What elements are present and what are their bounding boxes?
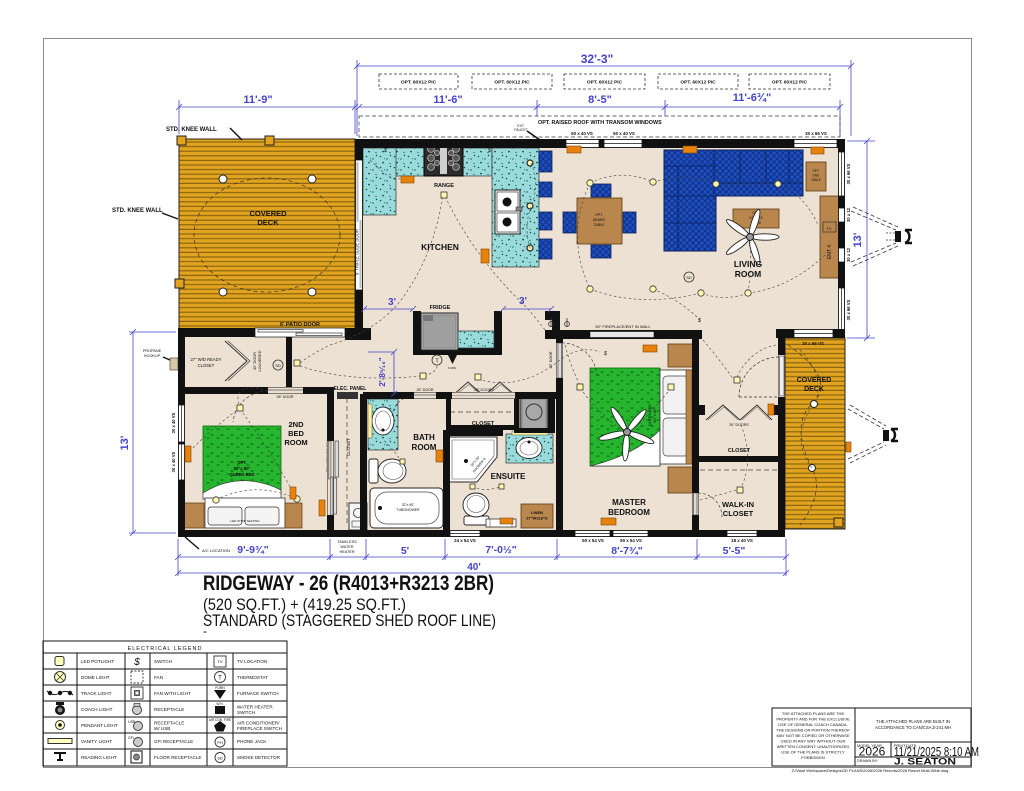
svg-text:11'-6": 11'-6" xyxy=(433,94,462,106)
svg-text:2'-8⁵⁄₁₆": 2'-8⁵⁄₁₆" xyxy=(378,357,387,387)
svg-text:STD. KNEE WALL: STD. KNEE WALL xyxy=(166,127,217,133)
svg-text:OPT. 60X12 PIC: OPT. 60X12 PIC xyxy=(587,80,623,86)
svg-text:OPT. RAISED ROOF WITH TRANSOM: OPT. RAISED ROOF WITH TRANSOM WINDOWS xyxy=(538,120,662,126)
svg-text:CLOSET: CLOSET xyxy=(346,438,351,456)
svg-text:A/C LOCATION: A/C LOCATION xyxy=(202,548,230,553)
svg-text:OPT.: OPT. xyxy=(595,213,603,217)
svg-text:TRACK LIGHT: TRACK LIGHT xyxy=(81,691,112,696)
svg-text:TV: TV xyxy=(826,226,831,231)
svg-text:BED: BED xyxy=(288,429,304,438)
svg-text:RECEPTACLE: RECEPTACLE xyxy=(154,707,184,712)
svg-text:8'-5": 8'-5" xyxy=(588,94,612,106)
svg-text:30 x 12: 30 x 12 xyxy=(846,247,851,262)
svg-text:ENT 4: ENT 4 xyxy=(827,245,833,259)
svg-text:30 x 12: 30 x 12 xyxy=(846,207,851,222)
svg-text:3': 3' xyxy=(388,297,396,308)
svg-text:USE OF THE PLANS IS STRICTLY: USE OF THE PLANS IS STRICTLY xyxy=(781,750,845,755)
svg-text:13': 13' xyxy=(119,435,131,450)
svg-text:FURNACE SWITCH: FURNACE SWITCH xyxy=(237,691,279,696)
svg-text:27"Wx18"D: 27"Wx18"D xyxy=(526,516,548,521)
svg-text:DRAWN BY:: DRAWN BY: xyxy=(857,759,878,763)
svg-text:PH: PH xyxy=(217,740,223,745)
svg-text:ROOM: ROOM xyxy=(735,269,761,279)
svg-text:FIREPLACE SWITCH: FIREPLACE SWITCH xyxy=(237,726,282,731)
svg-text:ROOM: ROOM xyxy=(284,438,307,447)
svg-text:50 x 40 VS: 50 x 40 VS xyxy=(571,131,593,136)
svg-text:TANKLESS: TANKLESS xyxy=(337,540,357,544)
svg-text:THERMOSTAT: THERMOSTAT xyxy=(237,675,268,680)
svg-text:TABLE: TABLE xyxy=(811,178,821,182)
svg-text:3': 3' xyxy=(519,296,527,307)
svg-text:SMOKE DETECTOR: SMOKE DETECTOR xyxy=(237,755,281,760)
svg-text:OPT. 60X12 PIC: OPT. 60X12 PIC xyxy=(494,80,530,86)
svg-text:TABLE: TABLE xyxy=(593,223,605,227)
svg-text:2ND: 2ND xyxy=(288,420,304,429)
svg-text:QUEEN BED: QUEEN BED xyxy=(648,404,652,427)
svg-text:RECEPTACLE: RECEPTACLE xyxy=(154,721,184,726)
svg-text:28" DOOR: 28" DOOR xyxy=(276,395,293,399)
svg-text:ELECTRICAL LEGEND: ELECTRICAL LEGEND xyxy=(128,646,203,652)
svg-text:9'-9¾": 9'-9¾" xyxy=(237,544,268,556)
svg-text:$: $ xyxy=(133,657,140,668)
svg-text:USED IN ANY WAY WITHOUT OUR: USED IN ANY WAY WITHOUT OUR xyxy=(781,739,846,744)
svg-text:QUEEN BED: QUEEN BED xyxy=(230,472,255,477)
svg-text:USB: USB xyxy=(128,720,136,724)
svg-text:$: $ xyxy=(383,148,387,154)
svg-text:SD: SD xyxy=(275,363,281,368)
svg-text:Z:\Vault Workspace\Designs\2D: Z:\Vault Workspace\Designs\2D PLANS\2026… xyxy=(792,768,949,773)
svg-text:FURN: FURN xyxy=(448,366,456,370)
svg-text:BATH: BATH xyxy=(413,433,435,442)
svg-text:26" DOORS: 26" DOORS xyxy=(729,423,749,427)
svg-text:32'-3": 32'-3" xyxy=(581,52,614,66)
svg-text:OPT. 60X12 PIC: OPT. 60X12 PIC xyxy=(401,80,437,86)
svg-text:FRIDGE: FRIDGE xyxy=(430,305,451,311)
svg-text:8'-7¾": 8'-7¾" xyxy=(611,545,642,557)
svg-text:SD: SD xyxy=(217,756,223,761)
svg-text:$$: $$ xyxy=(545,332,552,338)
svg-text:FAN WITH LIGHT: FAN WITH LIGHT xyxy=(154,691,191,696)
svg-text:LED POTLIGHT: LED POTLIGHT xyxy=(81,659,114,664)
svg-text:SWITCH: SWITCH xyxy=(237,710,255,715)
svg-text:BEDROOM: BEDROOM xyxy=(608,508,650,517)
svg-text:ENSUITE: ENSUITE xyxy=(491,472,526,481)
svg-text:FORBIDDEN: FORBIDDEN xyxy=(801,755,825,760)
svg-text:-: - xyxy=(203,624,207,638)
svg-text:FAN: FAN xyxy=(154,675,163,680)
svg-text:USE OF GENERAL COACH CANADA.: USE OF GENERAL COACH CANADA. xyxy=(778,722,847,727)
svg-text:TUB/SHOWER: TUB/SHOWER xyxy=(397,508,421,512)
svg-text:DOME LIGHT: DOME LIGHT xyxy=(81,675,110,680)
svg-text:LINEN: LINEN xyxy=(531,510,543,515)
svg-text:FAUCET: FAUCET xyxy=(514,128,527,132)
svg-text:VANITY LIGHT: VANITY LIGHT xyxy=(81,739,112,744)
svg-text:PHONE JACK: PHONE JACK xyxy=(237,739,267,744)
svg-text:7'-0½": 7'-0½" xyxy=(485,544,516,556)
svg-text:WRITTEN CONSENT. UNAUTHORIZED: WRITTEN CONSENT. UNAUTHORIZED xyxy=(777,744,850,749)
svg-text:$: $ xyxy=(697,318,701,324)
svg-text:W/ USB: W/ USB xyxy=(154,726,170,731)
svg-text:MAY NOT BE COPIED OR OTHERWISE: MAY NOT BE COPIED OR OTHERWISE xyxy=(776,733,849,738)
svg-text:$: $ xyxy=(603,351,607,357)
svg-text:32"x 60": 32"x 60" xyxy=(402,503,415,507)
svg-text:HEATER: HEATER xyxy=(339,550,354,554)
svg-text:DECK: DECK xyxy=(804,386,824,393)
svg-text:LED STRIP SEATING: LED STRIP SEATING xyxy=(230,519,260,523)
svg-text:18 x 40 VS: 18 x 40 VS xyxy=(731,538,753,543)
svg-text:THE ATTACHED PLANS ARE BUILT I: THE ATTACHED PLANS ARE BUILT IN xyxy=(876,719,950,724)
svg-text:WATER: WATER xyxy=(340,545,354,549)
svg-text:11'-6¾": 11'-6¾" xyxy=(733,92,771,104)
svg-text:HOOKUP: HOOKUP xyxy=(144,354,161,358)
svg-text:PROPANE: PROPANE xyxy=(143,349,162,353)
svg-text:W.H.: W.H. xyxy=(216,702,223,706)
svg-text:26" DOOR: 26" DOOR xyxy=(416,388,433,392)
svg-text:30" DOOR: 30" DOOR xyxy=(253,352,257,370)
svg-text:PROPERTY AND FOR THE EXCLUSIVE: PROPERTY AND FOR THE EXCLUSIVE xyxy=(776,717,850,722)
svg-text:OPT.: OPT. xyxy=(812,169,819,173)
svg-text:RIDGEWAY - 26 (R4013+R3213 2BR: RIDGEWAY - 26 (R4013+R3213 2BR) xyxy=(203,572,494,595)
svg-text:LIVING: LIVING xyxy=(734,259,763,269)
svg-text:50 x 40 VS: 50 x 40 VS xyxy=(613,131,635,136)
svg-text:SWITCH: SWITCH xyxy=(154,659,172,664)
svg-text:TV LOCATION: TV LOCATION xyxy=(237,659,267,664)
svg-text:TV: TV xyxy=(217,659,222,664)
svg-text:RANGE: RANGE xyxy=(434,183,454,189)
svg-text:GFI: GFI xyxy=(128,736,134,740)
svg-text:OPT.: OPT. xyxy=(237,460,246,465)
svg-text:5': 5' xyxy=(401,545,409,557)
svg-text:13': 13' xyxy=(852,232,864,247)
svg-text:50" FIREPLACE/ENT IN WALL: 50" FIREPLACE/ENT IN WALL xyxy=(595,324,651,329)
svg-text:50 x 54 VS: 50 x 54 VS xyxy=(620,538,642,543)
svg-text:GFI RECEPTACLE: GFI RECEPTACLE xyxy=(154,739,193,744)
svg-text:2026: 2026 xyxy=(859,745,886,759)
svg-text:J. SEATON: J. SEATON xyxy=(894,757,956,768)
svg-text:CLOSET: CLOSET xyxy=(198,363,215,368)
svg-text:FURN: FURN xyxy=(215,686,225,690)
svg-text:11'-9": 11'-9" xyxy=(243,94,272,106)
svg-text:FLOOR RECEPTACLE: FLOOR RECEPTACLE xyxy=(154,755,201,760)
svg-text:ROOM: ROOM xyxy=(412,443,437,452)
svg-text:T: T xyxy=(218,676,222,682)
svg-text:30 x 66 VS: 30 x 66 VS xyxy=(846,299,851,320)
svg-text:6' PATIO DOOR: 6' PATIO DOOR xyxy=(280,322,320,328)
svg-text:30 x 66 VS: 30 x 66 VS xyxy=(805,131,827,136)
svg-text:THE DESIGNS OR PORTION THEREOF: THE DESIGNS OR PORTION THEREOF xyxy=(776,728,850,733)
svg-text:OPT. 60X12 PIC: OPT. 60X12 PIC xyxy=(680,80,716,86)
svg-text:5'-5": 5'-5" xyxy=(723,545,746,557)
svg-text:60"x 80": 60"x 80" xyxy=(234,466,251,471)
svg-text:AIR CONDITIONER/: AIR CONDITIONER/ xyxy=(237,721,280,726)
svg-text:30 x 66 VS: 30 x 66 VS xyxy=(802,341,824,346)
svg-text:30 x 40 VS: 30 x 40 VS xyxy=(171,451,176,472)
svg-text:CLOSET: CLOSET xyxy=(723,509,754,518)
svg-text:LOUVERED: LOUVERED xyxy=(258,350,262,371)
svg-text:ELEC. PANEL: ELEC. PANEL xyxy=(334,386,367,392)
svg-text:END: END xyxy=(813,174,820,178)
svg-text:28" DOOR: 28" DOOR xyxy=(549,351,553,368)
svg-text:27" W/D READY: 27" W/D READY xyxy=(190,357,221,362)
svg-text:COVERED: COVERED xyxy=(797,377,832,384)
svg-text:WALK-IN: WALK-IN xyxy=(722,500,754,509)
svg-text:KITCHEN: KITCHEN xyxy=(421,242,459,252)
svg-text:DECK: DECK xyxy=(257,218,279,227)
svg-text:30 x 40 VS: 30 x 40 VS xyxy=(171,412,176,433)
svg-text:WATER HEATER: WATER HEATER xyxy=(237,705,273,710)
svg-text:READING LIGHT: READING LIGHT xyxy=(81,755,117,760)
svg-text:9' TRIPLE SLIDE DOOR: 9' TRIPLE SLIDE DOOR xyxy=(355,229,360,275)
svg-text:28" DOORS: 28" DOORS xyxy=(474,388,494,392)
svg-text:STD. KNEE WALL: STD. KNEE WALL xyxy=(112,208,163,214)
svg-text:SD: SD xyxy=(686,275,692,280)
svg-text:ACCORDANCE TO CAN/CSA Z-241 MH: ACCORDANCE TO CAN/CSA Z-241 MH xyxy=(875,725,951,730)
svg-text:$: $ xyxy=(487,148,491,154)
svg-text:30 x 66 VS: 30 x 66 VS xyxy=(846,163,851,184)
svg-text:COVERED: COVERED xyxy=(249,209,287,218)
svg-text:MASTER: MASTER xyxy=(612,498,646,507)
svg-text:PENDANT LIGHT: PENDANT LIGHT xyxy=(81,723,118,728)
svg-text:DINING: DINING xyxy=(593,218,606,222)
svg-text:STANDARD (STAGGERED SHED ROOF: STANDARD (STAGGERED SHED ROOF LINE) xyxy=(203,611,496,630)
svg-text:50 x 54 VS: 50 x 54 VS xyxy=(582,538,604,543)
svg-text:OPT. 60X12 PIC: OPT. 60X12 PIC xyxy=(772,80,808,86)
svg-text:COACH LIGHT: COACH LIGHT xyxy=(81,707,113,712)
svg-text:THE ATTACHED PLANS ARE THE: THE ATTACHED PLANS ARE THE xyxy=(782,711,845,716)
svg-text:24 x 54 VS: 24 x 54 VS xyxy=(454,538,476,543)
